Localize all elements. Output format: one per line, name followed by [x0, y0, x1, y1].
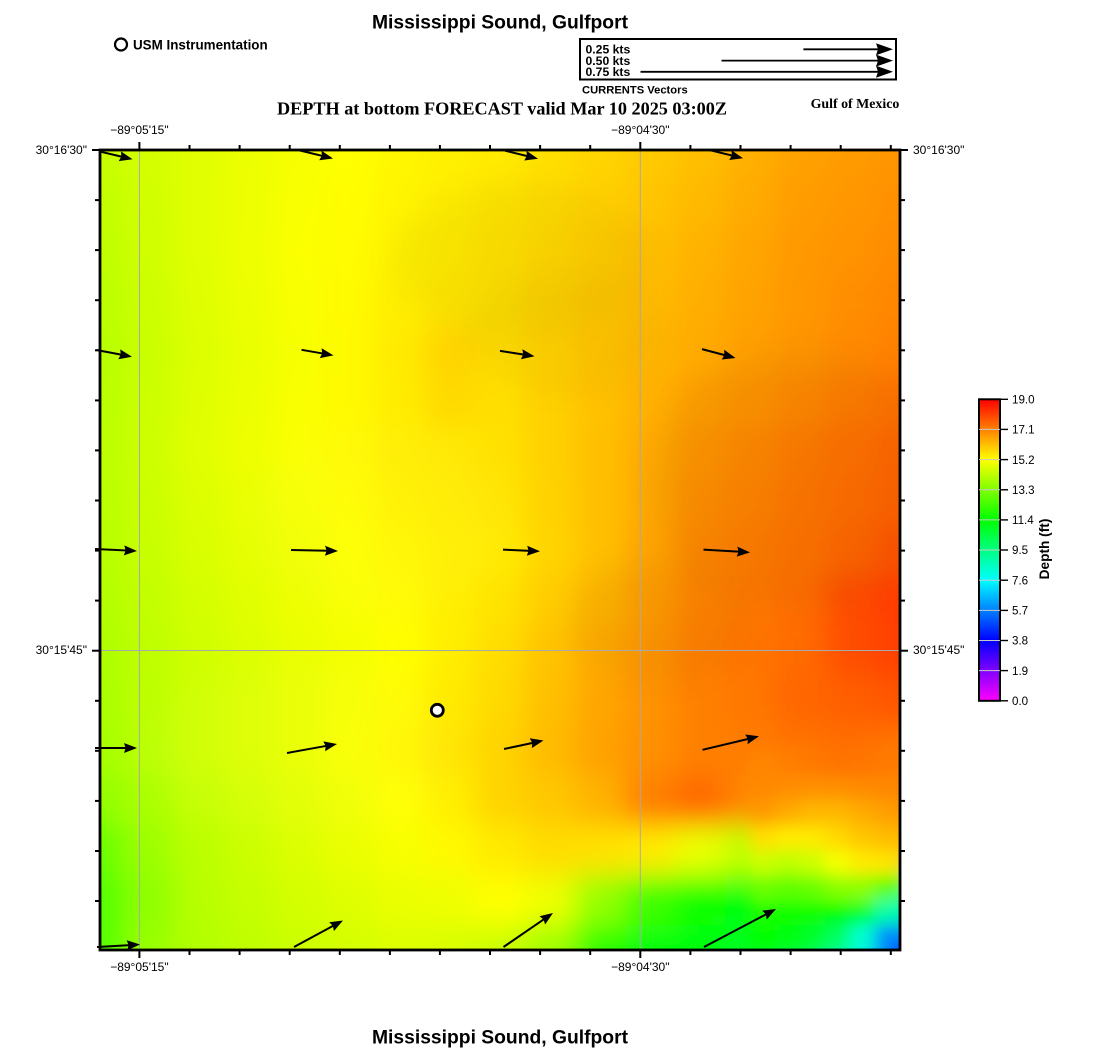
svg-text:−89°05'15": −89°05'15" [110, 123, 168, 137]
svg-text:30°15'45": 30°15'45" [913, 643, 964, 657]
svg-text:30°15'45": 30°15'45" [36, 643, 87, 657]
svg-text:0.75 kts: 0.75 kts [586, 65, 631, 79]
svg-text:Gulf of Mexico: Gulf of Mexico [811, 97, 900, 112]
svg-text:Mississippi Sound, Gulfport: Mississippi Sound, Gulfport [372, 1028, 629, 1049]
svg-text:DEPTH at bottom FORECAST valid: DEPTH at bottom FORECAST valid Mar 10 20… [277, 99, 727, 119]
svg-text:−89°05'15": −89°05'15" [110, 960, 168, 974]
svg-text:USM Instrumentation: USM Instrumentation [133, 38, 268, 53]
svg-text:0.0: 0.0 [1012, 695, 1028, 708]
svg-text:−89°04'30": −89°04'30" [611, 960, 669, 974]
svg-text:1.9: 1.9 [1012, 665, 1028, 678]
svg-text:3.8: 3.8 [1012, 635, 1028, 648]
svg-text:19.0: 19.0 [1012, 394, 1035, 407]
svg-text:−89°04'30": −89°04'30" [611, 123, 669, 137]
svg-text:11.4: 11.4 [1012, 514, 1034, 527]
svg-text:15.2: 15.2 [1012, 454, 1035, 467]
svg-text:7.6: 7.6 [1012, 574, 1028, 587]
svg-text:30°16'30": 30°16'30" [913, 143, 964, 157]
svg-text:Depth (ft): Depth (ft) [1037, 519, 1052, 580]
svg-text:13.3: 13.3 [1012, 484, 1035, 497]
svg-text:9.5: 9.5 [1012, 544, 1028, 557]
svg-text:5.7: 5.7 [1012, 605, 1028, 618]
svg-text:CURRENTS Vectors: CURRENTS Vectors [582, 85, 688, 97]
svg-text:Mississippi Sound, Gulfport: Mississippi Sound, Gulfport [372, 13, 629, 34]
svg-text:30°16'30": 30°16'30" [36, 143, 87, 157]
svg-text:17.1: 17.1 [1012, 424, 1035, 437]
